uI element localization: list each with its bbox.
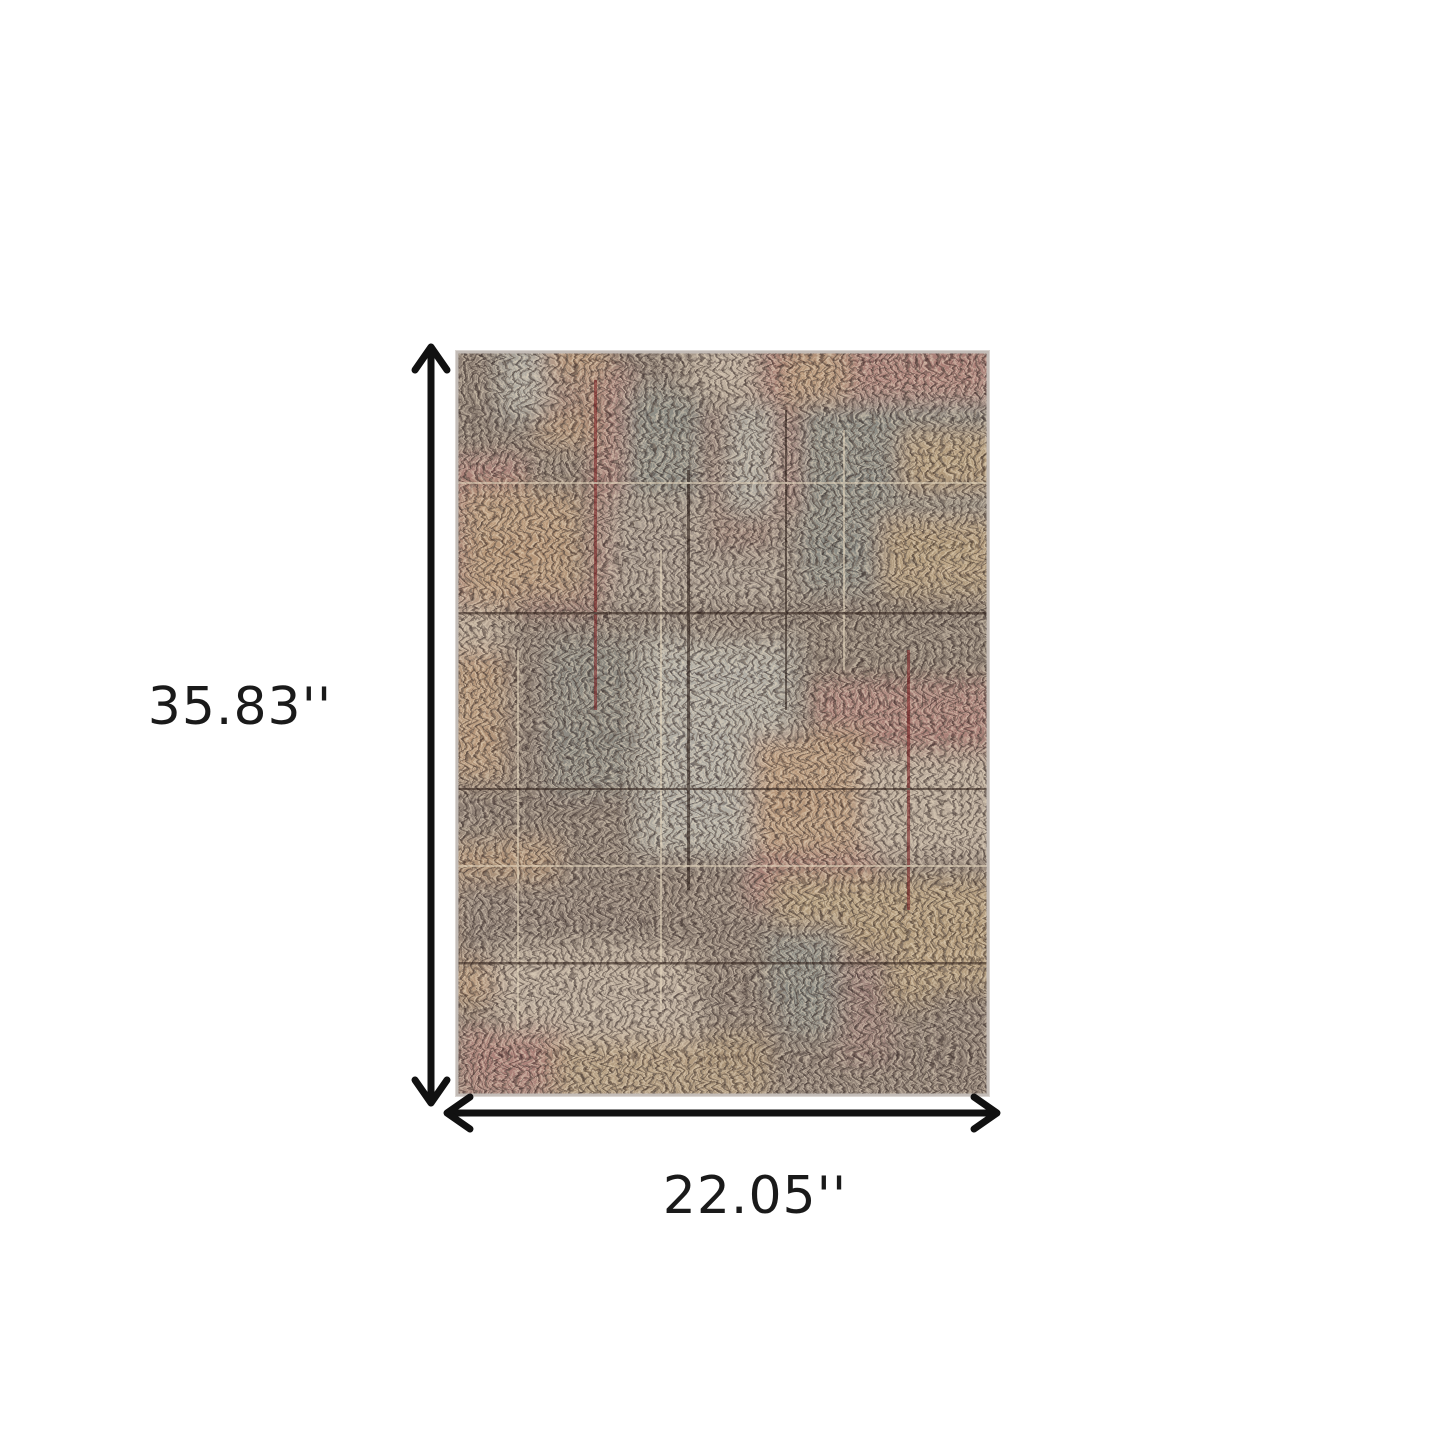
product-dimension-diagram: 35.83'' 22.05'' — [0, 0, 1445, 1445]
height-dimension-label: 35.83'' — [148, 677, 332, 737]
width-arrow-icon — [437, 1089, 1007, 1137]
rug-artwork — [455, 350, 990, 1097]
height-arrow-icon — [407, 333, 455, 1117]
rug-product-image — [455, 350, 990, 1097]
width-dimension-label: 22.05'' — [663, 1166, 847, 1226]
